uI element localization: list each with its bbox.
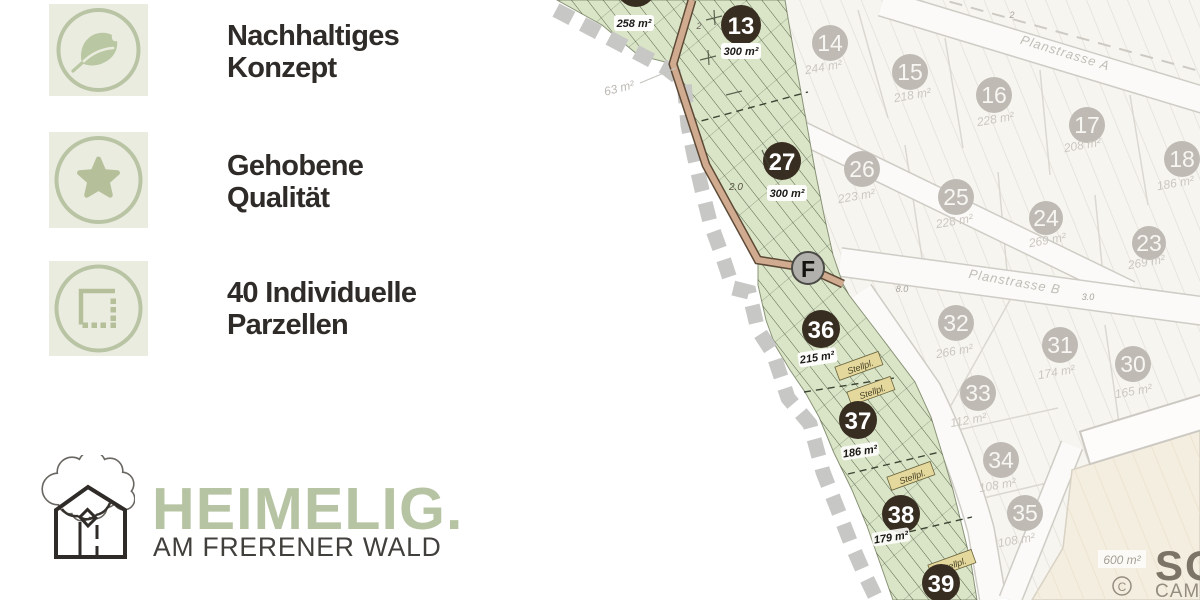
svg-text:63 m²: 63 m² — [602, 77, 636, 98]
svg-text:26: 26 — [849, 156, 875, 182]
svg-text:27: 27 — [769, 149, 796, 176]
svg-text:F: F — [801, 256, 815, 282]
svg-text:39: 39 — [928, 571, 955, 598]
svg-text:13: 13 — [728, 13, 755, 40]
svg-text:8.0: 8.0 — [896, 284, 909, 294]
svg-text:34: 34 — [988, 447, 1014, 473]
svg-text:600 m²: 600 m² — [1103, 553, 1141, 567]
svg-text:25: 25 — [943, 184, 969, 210]
svg-text:24: 24 — [1033, 205, 1059, 231]
svg-text:18: 18 — [1169, 146, 1195, 172]
svg-text:14: 14 — [817, 30, 843, 56]
svg-text:300 m²: 300 m² — [724, 46, 759, 58]
svg-text:2: 2 — [695, 21, 701, 31]
svg-text:32: 32 — [943, 310, 969, 336]
svg-text:17: 17 — [1074, 112, 1100, 138]
svg-text:36: 36 — [808, 317, 835, 344]
svg-text:30: 30 — [1120, 351, 1146, 377]
svg-text:15: 15 — [897, 59, 923, 85]
svg-text:2.0: 2.0 — [728, 182, 743, 193]
svg-text:CAMB: CAMB — [1155, 581, 1200, 600]
svg-text:38: 38 — [888, 502, 915, 529]
svg-text:258 m²: 258 m² — [616, 18, 652, 30]
svg-text:300 m²: 300 m² — [770, 188, 805, 200]
svg-text:37: 37 — [845, 408, 872, 435]
svg-text:31: 31 — [1047, 332, 1073, 358]
svg-text:16: 16 — [981, 82, 1007, 108]
svg-text:33: 33 — [965, 380, 991, 406]
svg-text:3.0: 3.0 — [1082, 292, 1095, 302]
svg-text:35: 35 — [1012, 500, 1038, 526]
svg-text:2: 2 — [1008, 10, 1014, 20]
svg-text:C: C — [1118, 580, 1127, 594]
